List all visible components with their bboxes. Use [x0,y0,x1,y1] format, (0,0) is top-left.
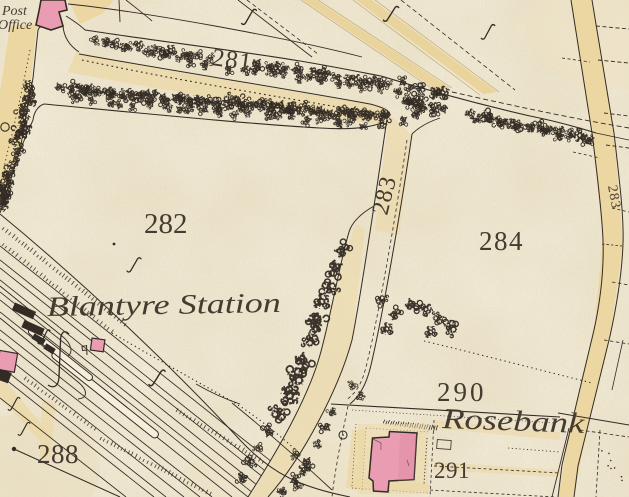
svg-text:Blantyre Station: Blantyre Station [47,288,282,323]
svg-text:282: 282 [144,208,188,240]
svg-text:291: 291 [434,458,470,483]
svg-text:Rosebank: Rosebank [440,403,586,440]
svg-text:Post: Post [1,4,28,19]
svg-text:288: 288 [37,439,79,469]
svg-text:281: 281 [210,44,254,76]
svg-text:Office: Office [0,18,32,33]
svg-text:284: 284 [479,226,524,256]
